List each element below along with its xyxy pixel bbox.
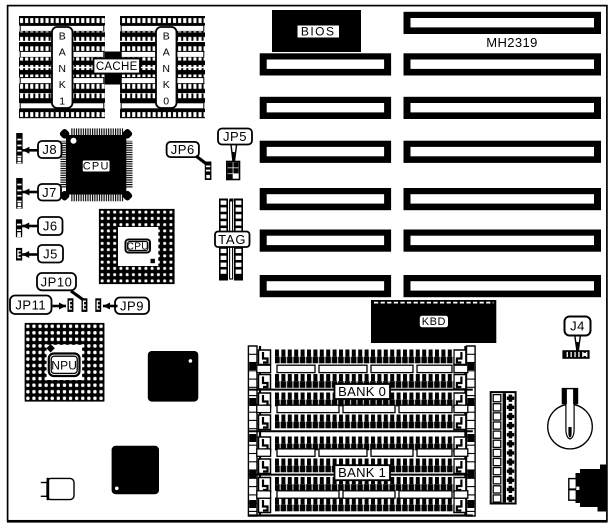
svg-text:CACHE: CACHE (96, 61, 138, 73)
svg-text:TAG: TAG (218, 232, 246, 247)
svg-text:BIOS: BIOS (301, 24, 336, 38)
svg-text:NPU: NPU (51, 359, 77, 373)
svg-text:0: 0 (163, 95, 169, 107)
svg-text:JP11: JP11 (15, 297, 46, 312)
svg-text:J7: J7 (42, 185, 57, 200)
svg-text:BANK 0: BANK 0 (338, 384, 386, 399)
svg-text:MH2319: MH2319 (486, 35, 538, 50)
svg-text:JP6: JP6 (171, 142, 195, 157)
svg-text:BANK 1: BANK 1 (338, 465, 386, 480)
svg-text:J4: J4 (570, 319, 585, 334)
svg-text:J6: J6 (43, 219, 58, 234)
svg-text:N: N (162, 63, 170, 75)
svg-text:J8: J8 (42, 142, 57, 157)
svg-text:CPU: CPU (83, 161, 110, 173)
svg-text:J5: J5 (43, 246, 58, 261)
svg-text:B: B (163, 31, 170, 43)
svg-text:B: B (59, 31, 66, 43)
svg-text:K: K (163, 79, 170, 91)
svg-text:JP10: JP10 (41, 274, 73, 289)
svg-text:A: A (59, 47, 66, 59)
svg-text:K: K (59, 79, 66, 91)
svg-text:KBD: KBD (422, 316, 446, 328)
svg-text:JP9: JP9 (120, 298, 144, 313)
svg-text:N: N (58, 63, 66, 75)
svg-text:1: 1 (59, 95, 65, 107)
svg-text:CPU: CPU (127, 242, 149, 253)
svg-text:JP5: JP5 (223, 129, 247, 144)
svg-text:A: A (163, 47, 170, 59)
